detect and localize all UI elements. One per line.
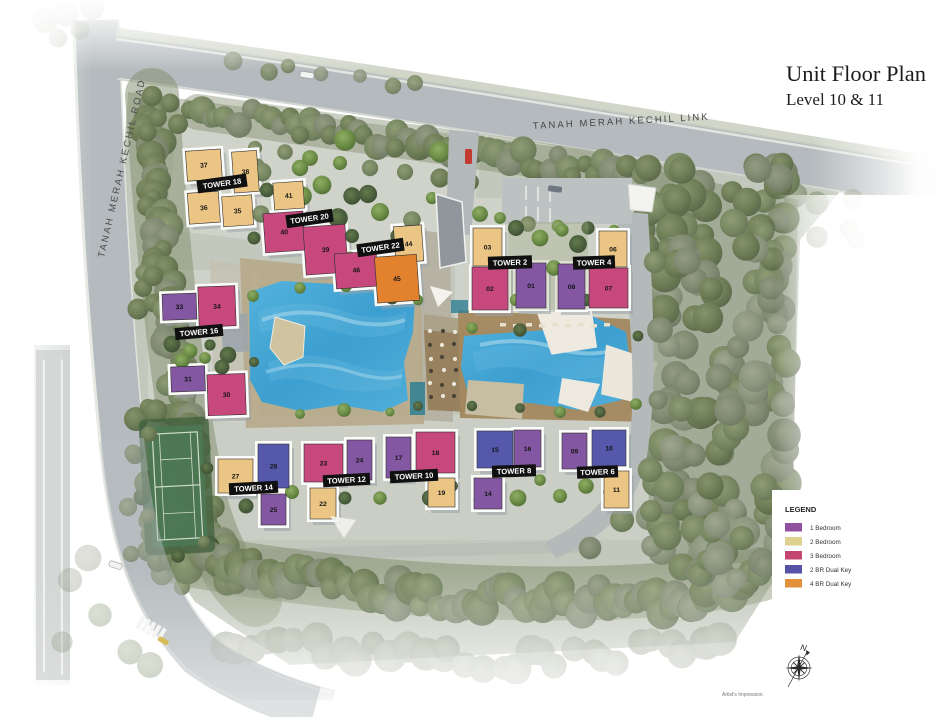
svg-text:31: 31 — [184, 376, 192, 383]
svg-text:10: 10 — [605, 445, 613, 452]
svg-text:19: 19 — [438, 490, 446, 497]
svg-text:41: 41 — [285, 193, 293, 201]
svg-text:03: 03 — [484, 244, 492, 251]
svg-text:36: 36 — [200, 205, 208, 213]
svg-text:24: 24 — [356, 457, 364, 464]
svg-text:2 Bedroom: 2 Bedroom — [810, 539, 841, 546]
svg-text:TOWER 4: TOWER 4 — [577, 258, 613, 268]
svg-text:30: 30 — [223, 392, 231, 399]
svg-text:11: 11 — [613, 487, 620, 494]
svg-text:33: 33 — [176, 304, 184, 311]
svg-text:02: 02 — [486, 286, 494, 293]
svg-text:TOWER 6: TOWER 6 — [580, 467, 615, 477]
svg-text:15: 15 — [491, 447, 499, 454]
svg-text:17: 17 — [395, 455, 403, 462]
svg-text:LEGEND: LEGEND — [785, 505, 817, 514]
svg-text:28: 28 — [270, 463, 278, 470]
svg-text:4 BR Dual Key: 4 BR Dual Key — [810, 581, 852, 588]
svg-text:Level 10 & 11: Level 10 & 11 — [786, 90, 884, 109]
svg-text:07: 07 — [605, 285, 613, 292]
svg-text:TOWER 8: TOWER 8 — [497, 466, 532, 476]
svg-text:2 BR Dual Key: 2 BR Dual Key — [810, 567, 852, 574]
svg-text:39: 39 — [322, 247, 330, 255]
svg-text:35: 35 — [234, 208, 242, 216]
svg-text:44: 44 — [405, 241, 413, 249]
svg-text:27: 27 — [232, 473, 240, 480]
svg-text:18: 18 — [432, 450, 440, 457]
svg-text:Artist's Impression: Artist's Impression — [722, 692, 763, 698]
svg-text:14: 14 — [484, 491, 492, 498]
svg-text:25: 25 — [270, 507, 278, 514]
svg-text:01: 01 — [527, 283, 535, 290]
svg-text:3 Bedroom: 3 Bedroom — [810, 553, 841, 560]
svg-text:06: 06 — [609, 246, 617, 253]
svg-text:40: 40 — [280, 229, 288, 237]
svg-text:34: 34 — [213, 304, 221, 311]
svg-text:Unit Floor Plan: Unit Floor Plan — [786, 61, 926, 86]
svg-text:08: 08 — [568, 284, 576, 291]
svg-text:37: 37 — [200, 162, 208, 170]
svg-text:23: 23 — [320, 460, 328, 467]
svg-text:1 Bedroom: 1 Bedroom — [810, 525, 841, 532]
svg-text:09: 09 — [571, 448, 579, 455]
svg-text:TOWER 2: TOWER 2 — [493, 258, 528, 268]
svg-text:22: 22 — [319, 501, 327, 508]
svg-text:45: 45 — [393, 276, 401, 284]
svg-text:46: 46 — [352, 267, 360, 275]
svg-text:16: 16 — [524, 446, 532, 453]
